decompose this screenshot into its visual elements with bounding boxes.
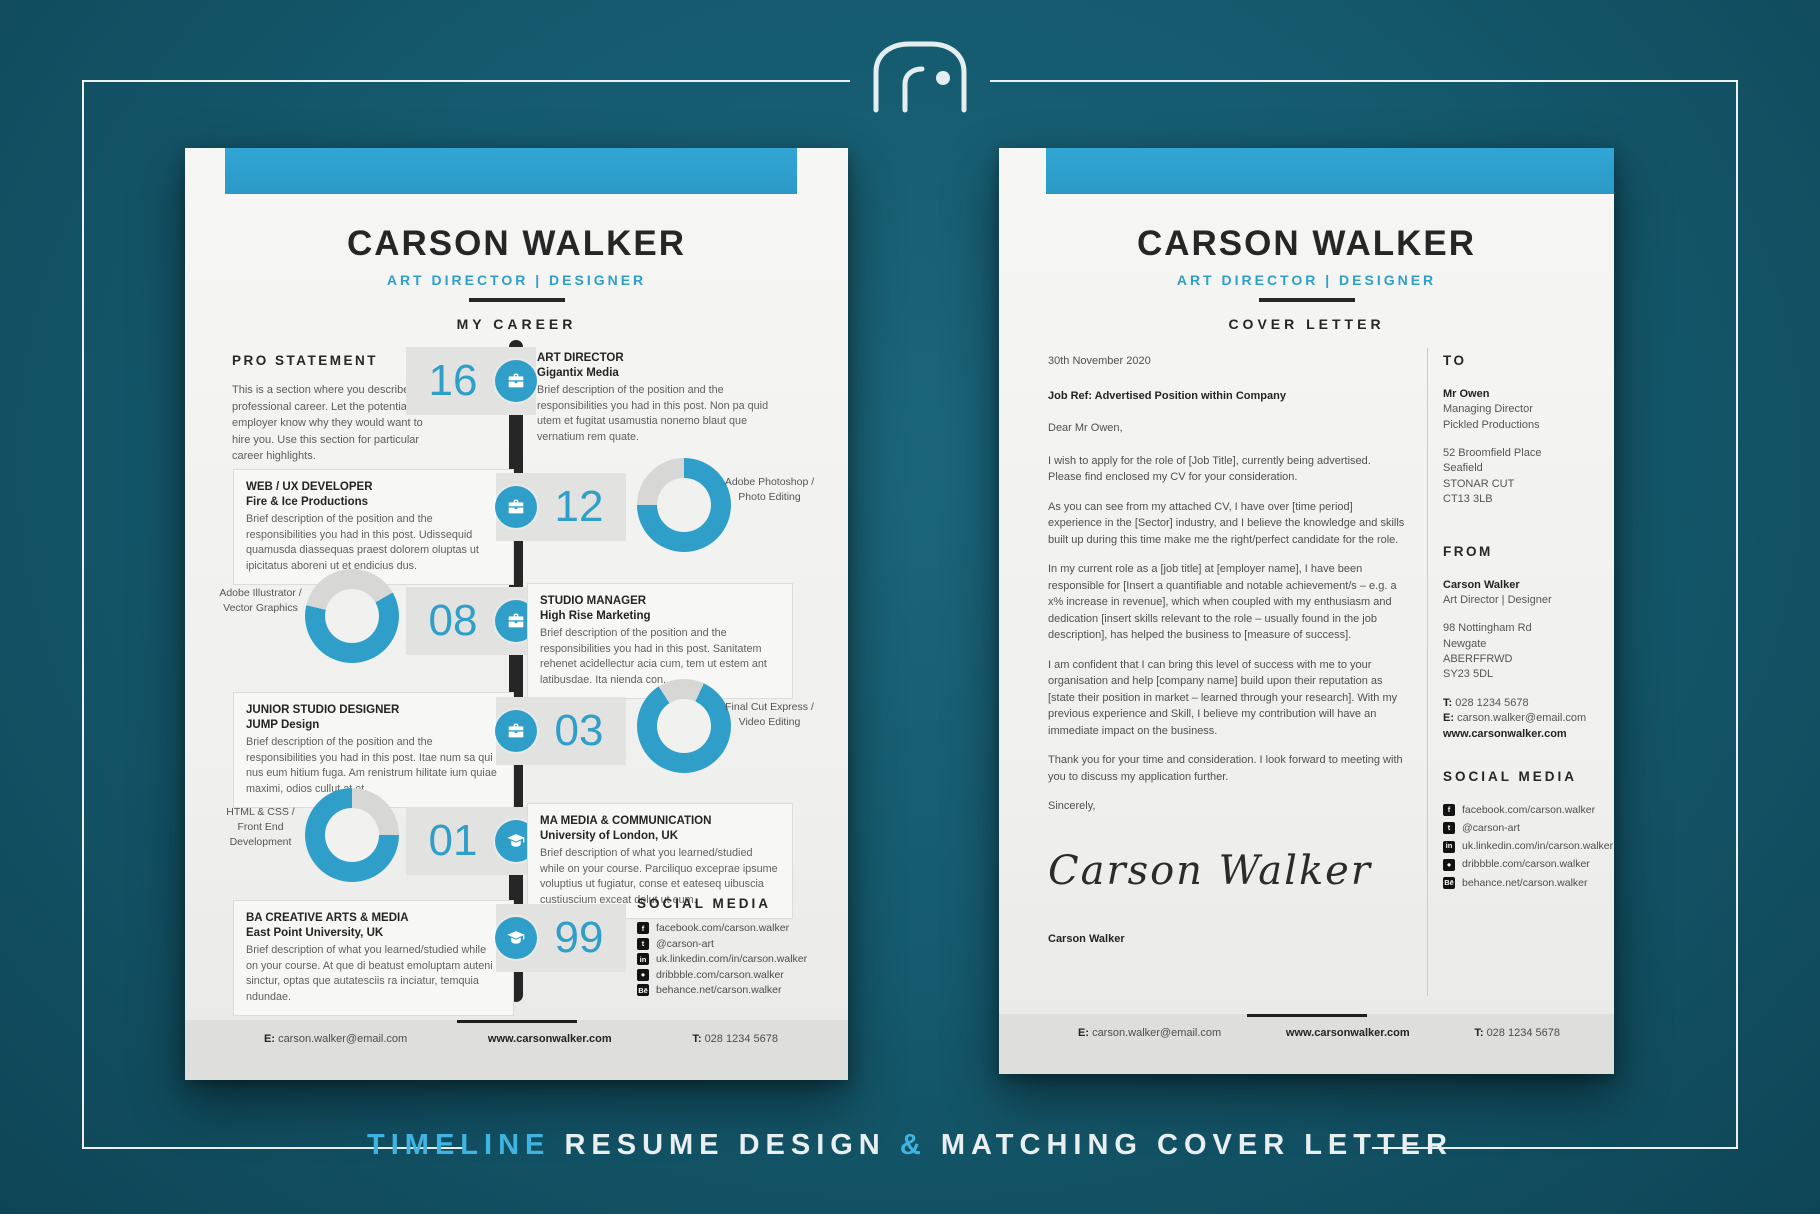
timeline-entry: BA CREATIVE ARTS & MEDIA East Point Univ… — [233, 900, 514, 1016]
resume-name: CARSON WALKER — [185, 224, 848, 264]
entry-title: JUNIOR STUDIO DESIGNER — [246, 703, 501, 718]
cover-letter-page: CARSON WALKER ART DIRECTOR | DESIGNER CO… — [999, 148, 1614, 1074]
cover-social-media: SOCIAL MEDIA f facebook.com/carson.walke… — [1443, 768, 1598, 890]
sender-email: E: carson.walker@email.com — [1443, 711, 1598, 726]
behance-icon: Bē — [1443, 877, 1455, 889]
linkedin-icon: in — [637, 953, 649, 965]
letter-job-ref: Job Ref: Advertised Position within Comp… — [1048, 388, 1406, 405]
social-text: facebook.com/carson.walker — [656, 922, 789, 934]
social-item: t @carson-art — [637, 938, 847, 950]
social-item: Bē behance.net/carson.walker — [637, 984, 847, 996]
footer-email: E: carson.walker@email.com — [1078, 1027, 1221, 1039]
letter-paragraph: As you can see from my attached CV, I ha… — [1048, 499, 1406, 549]
social-text: @carson-art — [1462, 821, 1520, 836]
cover-header-rule — [1259, 298, 1355, 302]
caption-ampersand: & — [900, 1129, 927, 1161]
product-caption: TIMELINE RESUME DESIGN & MATCHING COVER … — [0, 1129, 1820, 1162]
letter-paragraph: Thank you for your time and consideratio… — [1048, 752, 1406, 785]
briefcase-icon — [495, 710, 537, 752]
timeline-year: 99 — [534, 913, 624, 963]
letter-paragraph: I am confident that I can bring this lev… — [1048, 657, 1406, 740]
donut-hole — [325, 589, 379, 643]
frame-line-top-right — [990, 80, 1738, 82]
timeline-year: 12 — [534, 482, 624, 532]
entry-desc: Brief description of the position and th… — [537, 383, 789, 446]
linkedin-icon: in — [1443, 841, 1455, 853]
sender-role: Art Director | Designer — [1443, 593, 1598, 608]
resume-tagline: ART DIRECTOR | DESIGNER — [185, 272, 848, 288]
signed-name: Carson Walker — [1048, 931, 1406, 948]
address-line: STONAR CUT — [1443, 477, 1598, 492]
sender-block: Carson Walker Art Director | Designer — [1443, 578, 1598, 609]
frame-line-left — [82, 80, 84, 1149]
graduation-cap-icon — [495, 917, 537, 959]
recipient-role: Managing Director — [1443, 402, 1598, 417]
twitter-icon: t — [637, 938, 649, 950]
resume-footer: E: carson.walker@email.com www.carsonwal… — [185, 1020, 848, 1080]
resume-header-band — [225, 148, 797, 194]
timeline-year: 16 — [408, 356, 498, 406]
column-divider — [1427, 348, 1428, 996]
timeline-year: 01 — [408, 816, 498, 866]
footer-phone: T: 028 1234 5678 — [1474, 1027, 1560, 1039]
entry-title: MA MEDIA & COMMUNICATION — [540, 814, 780, 829]
facebook-icon: f — [637, 922, 649, 934]
resume-social-media: SOCIAL MEDIA f facebook.com/carson.walke… — [637, 896, 847, 1000]
entry-desc: Brief description of the position and th… — [540, 626, 780, 689]
social-item: t @carson-art — [1443, 821, 1598, 836]
timeline-entry: WEB / UX DEVELOPER Fire & Ice Production… — [233, 469, 514, 585]
entry-title: STUDIO MANAGER — [540, 594, 780, 609]
skill-donut-chart — [637, 679, 731, 773]
skill-donut-chart — [305, 788, 399, 882]
briefcase-icon — [495, 486, 537, 528]
entry-desc: Brief description of the position and th… — [246, 735, 501, 798]
entry-title: WEB / UX DEVELOPER — [246, 480, 501, 495]
skill-label: Adobe Illustrator / Vector Graphics — [213, 586, 308, 616]
resume-page: CARSON WALKER ART DIRECTOR | DESIGNER MY… — [185, 148, 848, 1080]
to-heading: TO — [1443, 352, 1598, 371]
address-line: Newgate — [1443, 637, 1598, 652]
entry-org: Gigantix Media — [537, 366, 789, 381]
social-item: in uk.linkedin.com/in/carson.walker — [637, 953, 847, 965]
social-text: dribbble.com/carson.walker — [656, 969, 784, 981]
skill-donut-chart — [637, 458, 731, 552]
resume-section-title: MY CAREER — [185, 316, 848, 332]
dribbble-icon: ● — [637, 969, 649, 981]
caption-text: MATCHING COVER LETTER — [941, 1129, 1453, 1161]
behance-icon: Bē — [637, 984, 649, 996]
footer-email: E: carson.walker@email.com — [264, 1033, 407, 1045]
letter-closing: Sincerely, — [1048, 798, 1406, 815]
social-text: behance.net/carson.walker — [656, 984, 782, 996]
skill-donut-chart — [305, 569, 399, 663]
recipient-address: 52 Broomfield Place Seafield STONAR CUT … — [1443, 446, 1598, 508]
letter-date: 30th November 2020 — [1048, 353, 1406, 370]
entry-desc: Brief description of the position and th… — [246, 512, 501, 575]
social-item: f facebook.com/carson.walker — [637, 922, 847, 934]
address-line: 52 Broomfield Place — [1443, 446, 1598, 461]
social-item: ● dribbble.com/carson.walker — [637, 969, 847, 981]
address-line: Seafield — [1443, 461, 1598, 476]
donut-hole — [657, 699, 711, 753]
cover-section-title: COVER LETTER — [999, 316, 1614, 332]
recipient-company: Pickled Productions — [1443, 418, 1598, 433]
cover-name: CARSON WALKER — [999, 224, 1614, 264]
letter-paragraph: I wish to apply for the role of [Job Tit… — [1048, 453, 1406, 486]
skill-label: Final Cut Express / Video Editing — [722, 700, 817, 730]
entry-org: University of London, UK — [540, 829, 780, 844]
timeline-entry: STUDIO MANAGER High Rise Marketing Brief… — [527, 583, 793, 699]
skill-label: HTML & CSS / Front End Development — [213, 805, 308, 851]
entry-org: East Point University, UK — [246, 926, 501, 941]
social-text: uk.linkedin.com/in/carson.walker — [1462, 839, 1613, 854]
address-line: CT13 3LB — [1443, 492, 1598, 507]
address-line: 98 Nottingham Rd — [1443, 621, 1598, 636]
dribbble-icon: ● — [1443, 859, 1455, 871]
from-heading: FROM — [1443, 543, 1598, 562]
footer-tick — [457, 1020, 577, 1023]
cover-footer: E: carson.walker@email.com www.carsonwal… — [999, 1014, 1614, 1074]
address-line: ABERFFRWD — [1443, 652, 1598, 667]
artboard: CARSON WALKER ART DIRECTOR | DESIGNER MY… — [0, 0, 1820, 1214]
timeline-year: 03 — [534, 706, 624, 756]
sender-name: Carson Walker — [1443, 578, 1598, 593]
briefcase-icon — [495, 360, 537, 402]
donut-hole — [657, 478, 711, 532]
social-heading: SOCIAL MEDIA — [1443, 768, 1598, 787]
timeline-entry: ART DIRECTOR Gigantix Media Brief descri… — [537, 351, 789, 445]
social-item: f facebook.com/carson.walker — [1443, 803, 1598, 818]
timeline-entry: JUNIOR STUDIO DESIGNER JUMP Design Brief… — [233, 692, 514, 808]
letter-paragraph: In my current role as a [job title] at [… — [1048, 561, 1406, 644]
footer-website: www.carsonwalker.com — [1286, 1027, 1410, 1039]
handwritten-signature: Carson Walker — [1048, 841, 1406, 901]
footer-tick — [1247, 1014, 1367, 1017]
donut-hole — [325, 808, 379, 862]
sender-phone: T: 028 1234 5678 — [1443, 696, 1598, 711]
frame-line-right — [1736, 80, 1738, 1149]
recipient-name: Mr Owen — [1443, 387, 1598, 402]
letter-sidebar: TO Mr Owen Managing Director Pickled Pro… — [1443, 352, 1598, 894]
letter-body: 30th November 2020 Job Ref: Advertised P… — [1048, 353, 1406, 947]
elephant-brand-logo-icon — [860, 34, 980, 118]
recipient-block: Mr Owen Managing Director Pickled Produc… — [1443, 387, 1598, 433]
social-item: ● dribbble.com/carson.walker — [1443, 857, 1598, 872]
sender-website: www.carsonwalker.com — [1443, 727, 1598, 742]
skill-label: Adobe Photoshop / Photo Editing — [722, 475, 817, 505]
social-text: facebook.com/carson.walker — [1462, 803, 1595, 818]
caption-highlight: TIMELINE — [367, 1129, 550, 1161]
cover-tagline: ART DIRECTOR | DESIGNER — [999, 272, 1614, 288]
social-item: in uk.linkedin.com/in/carson.walker — [1443, 839, 1598, 854]
facebook-icon: f — [1443, 804, 1455, 816]
twitter-icon: t — [1443, 822, 1455, 834]
frame-line-top-left — [82, 80, 850, 82]
sender-contact: T: 028 1234 5678 E: carson.walker@email.… — [1443, 696, 1598, 742]
social-text: behance.net/carson.walker — [1462, 876, 1588, 891]
timeline-year: 08 — [408, 596, 498, 646]
caption-text: RESUME DESIGN — [564, 1129, 885, 1161]
entry-org: Fire & Ice Productions — [246, 495, 501, 510]
entry-org: JUMP Design — [246, 718, 501, 733]
sender-address: 98 Nottingham Rd Newgate ABERFFRWD SY23 … — [1443, 621, 1598, 683]
social-text: @carson-art — [656, 938, 714, 950]
entry-title: ART DIRECTOR — [537, 351, 789, 366]
address-line: SY23 5DL — [1443, 667, 1598, 682]
letter-salutation: Dear Mr Owen, — [1048, 420, 1406, 437]
social-heading: SOCIAL MEDIA — [637, 896, 847, 911]
social-text: uk.linkedin.com/in/carson.walker — [656, 953, 807, 965]
social-item: Bē behance.net/carson.walker — [1443, 876, 1598, 891]
entry-title: BA CREATIVE ARTS & MEDIA — [246, 911, 501, 926]
footer-website: www.carsonwalker.com — [488, 1033, 612, 1045]
resume-header-rule — [469, 298, 565, 302]
cover-header-band — [1046, 148, 1614, 194]
footer-phone: T: 028 1234 5678 — [692, 1033, 778, 1045]
entry-desc: Brief description of what you learned/st… — [246, 943, 501, 1006]
social-text: dribbble.com/carson.walker — [1462, 857, 1590, 872]
entry-org: High Rise Marketing — [540, 609, 780, 624]
